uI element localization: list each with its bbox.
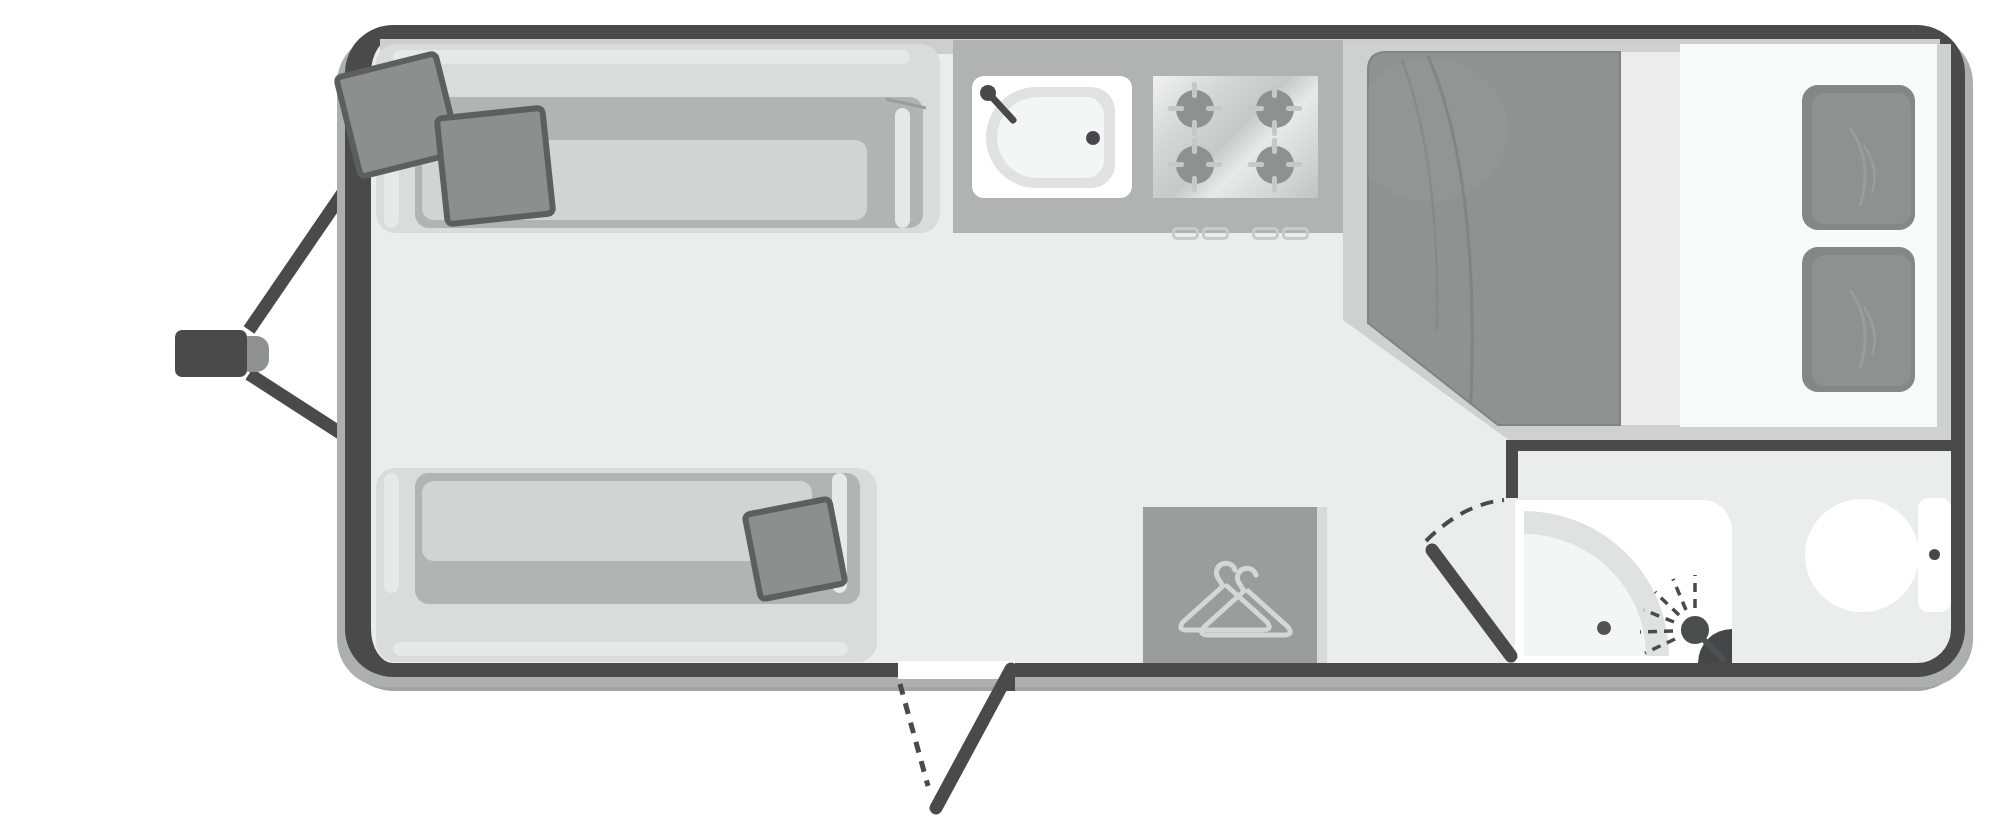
hitch-coupler-pin <box>237 336 269 372</box>
burner-tick <box>1272 176 1277 192</box>
burner-tick <box>1192 176 1197 192</box>
tap-icon <box>980 85 996 101</box>
burner-tick <box>1168 106 1184 111</box>
burner-tick <box>1192 138 1197 154</box>
wardrobe-edge <box>1317 507 1327 663</box>
burner-tick <box>1192 82 1197 98</box>
unit-handle-4 <box>1282 227 1309 240</box>
unit-handle-2 <box>1202 227 1229 240</box>
entry-door-jamb <box>1003 675 1015 691</box>
sink-drain-dot <box>1086 131 1100 145</box>
burner-tick <box>1248 162 1264 167</box>
entry-door-swing-dash <box>900 684 928 786</box>
sofa-rear-armrest-left <box>384 473 399 593</box>
shower-tray <box>1515 500 1732 663</box>
scatter-cushion-2 <box>433 104 556 227</box>
entry-door-opening <box>898 661 1015 679</box>
sofa-front-backrest-highlight <box>393 50 910 64</box>
hitch-coupler-head <box>175 330 247 377</box>
bathroom-partition-wall <box>1506 440 1951 451</box>
scatter-cushion-3 <box>741 495 849 603</box>
burner-tick <box>1272 120 1277 136</box>
toilet-bowl <box>1805 499 1919 612</box>
sofa-rear-backrest-highlight <box>393 642 848 656</box>
burner-tick <box>1272 82 1277 98</box>
toilet-flush-dot <box>1929 549 1940 560</box>
unit-handle-3 <box>1252 227 1279 240</box>
burner-tick <box>1248 106 1264 111</box>
hitch-a-frame <box>175 165 362 447</box>
burner-tick <box>1206 106 1222 111</box>
hob <box>1153 76 1318 198</box>
floorplan-canvas <box>0 0 2000 832</box>
entry-door-leaf <box>936 669 1011 808</box>
sofa-front-armrest-right <box>895 108 910 228</box>
unit-handle-1 <box>1172 227 1199 240</box>
burner-tick <box>1192 120 1197 136</box>
burner-tick <box>1206 162 1222 167</box>
burner-tick <box>1168 162 1184 167</box>
burner-tick <box>1286 106 1302 111</box>
burner-tick <box>1286 162 1302 167</box>
wardrobe <box>1143 507 1317 663</box>
bathroom-door-jamb <box>1506 440 1518 498</box>
burner-tick <box>1272 138 1277 154</box>
